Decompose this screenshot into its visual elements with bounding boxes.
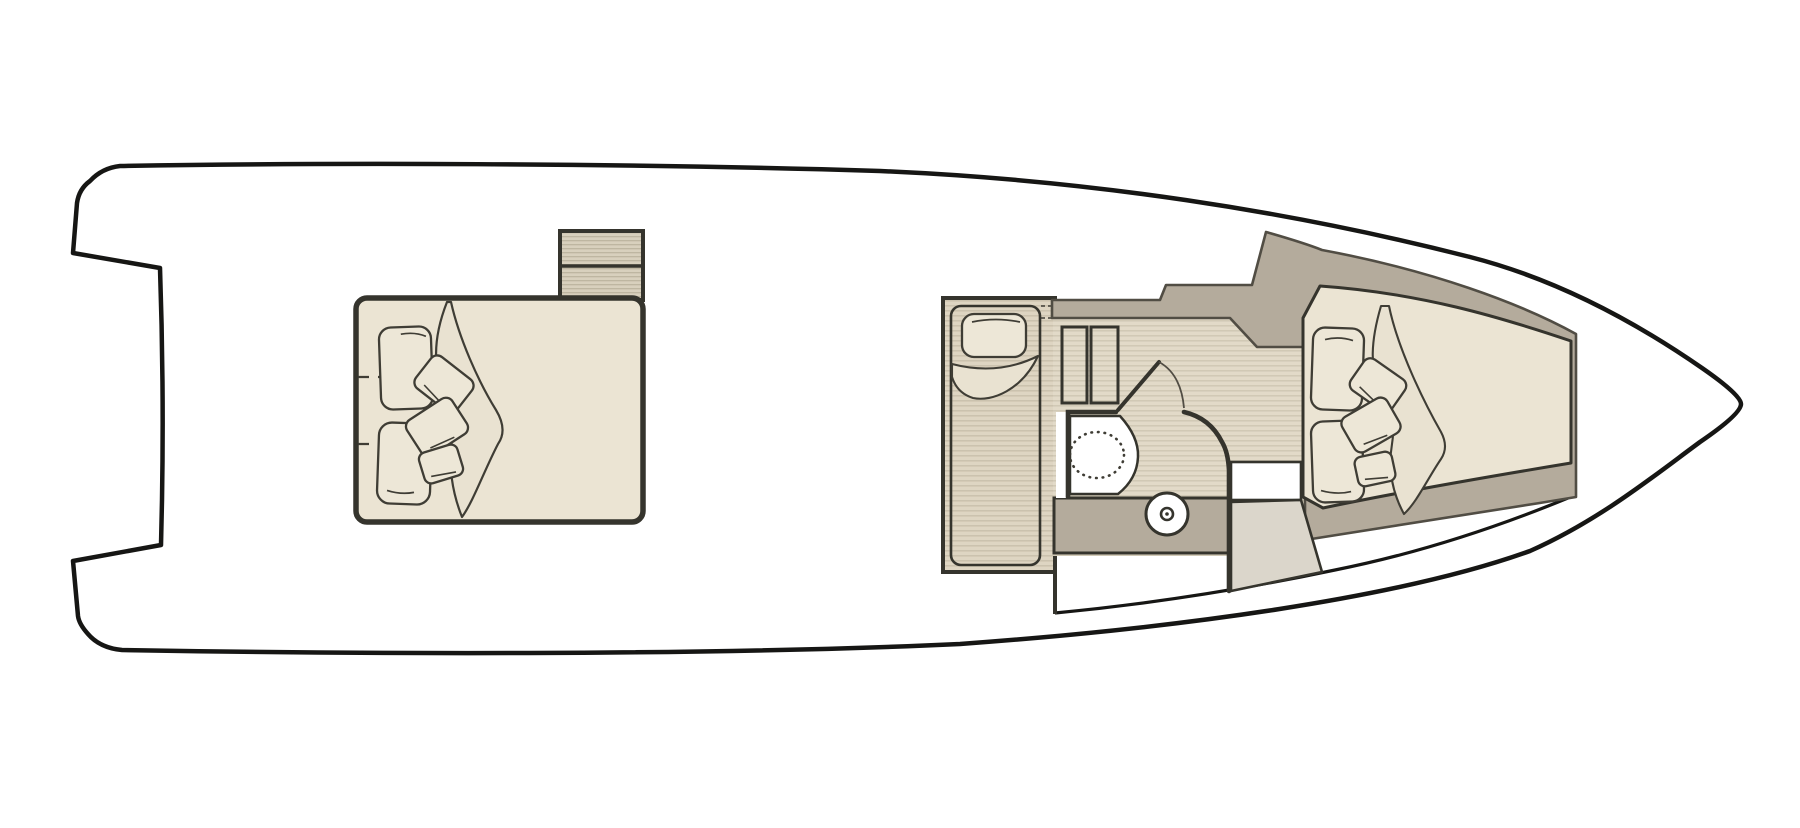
bow-bed-pillow-top [1311,327,1365,411]
vanity-counter [1054,498,1229,553]
midship-berth-room [943,298,1055,572]
yacht-floor-plan-page [0,0,1800,828]
stairwell-opening [1231,462,1301,500]
shower-tray [1070,416,1138,494]
washbasin-drain-dot [1165,512,1169,516]
floor-plan-canvas [0,0,1800,828]
bow-bed-cushion-3 [1353,450,1396,487]
wall-gap-strip [1056,412,1067,498]
